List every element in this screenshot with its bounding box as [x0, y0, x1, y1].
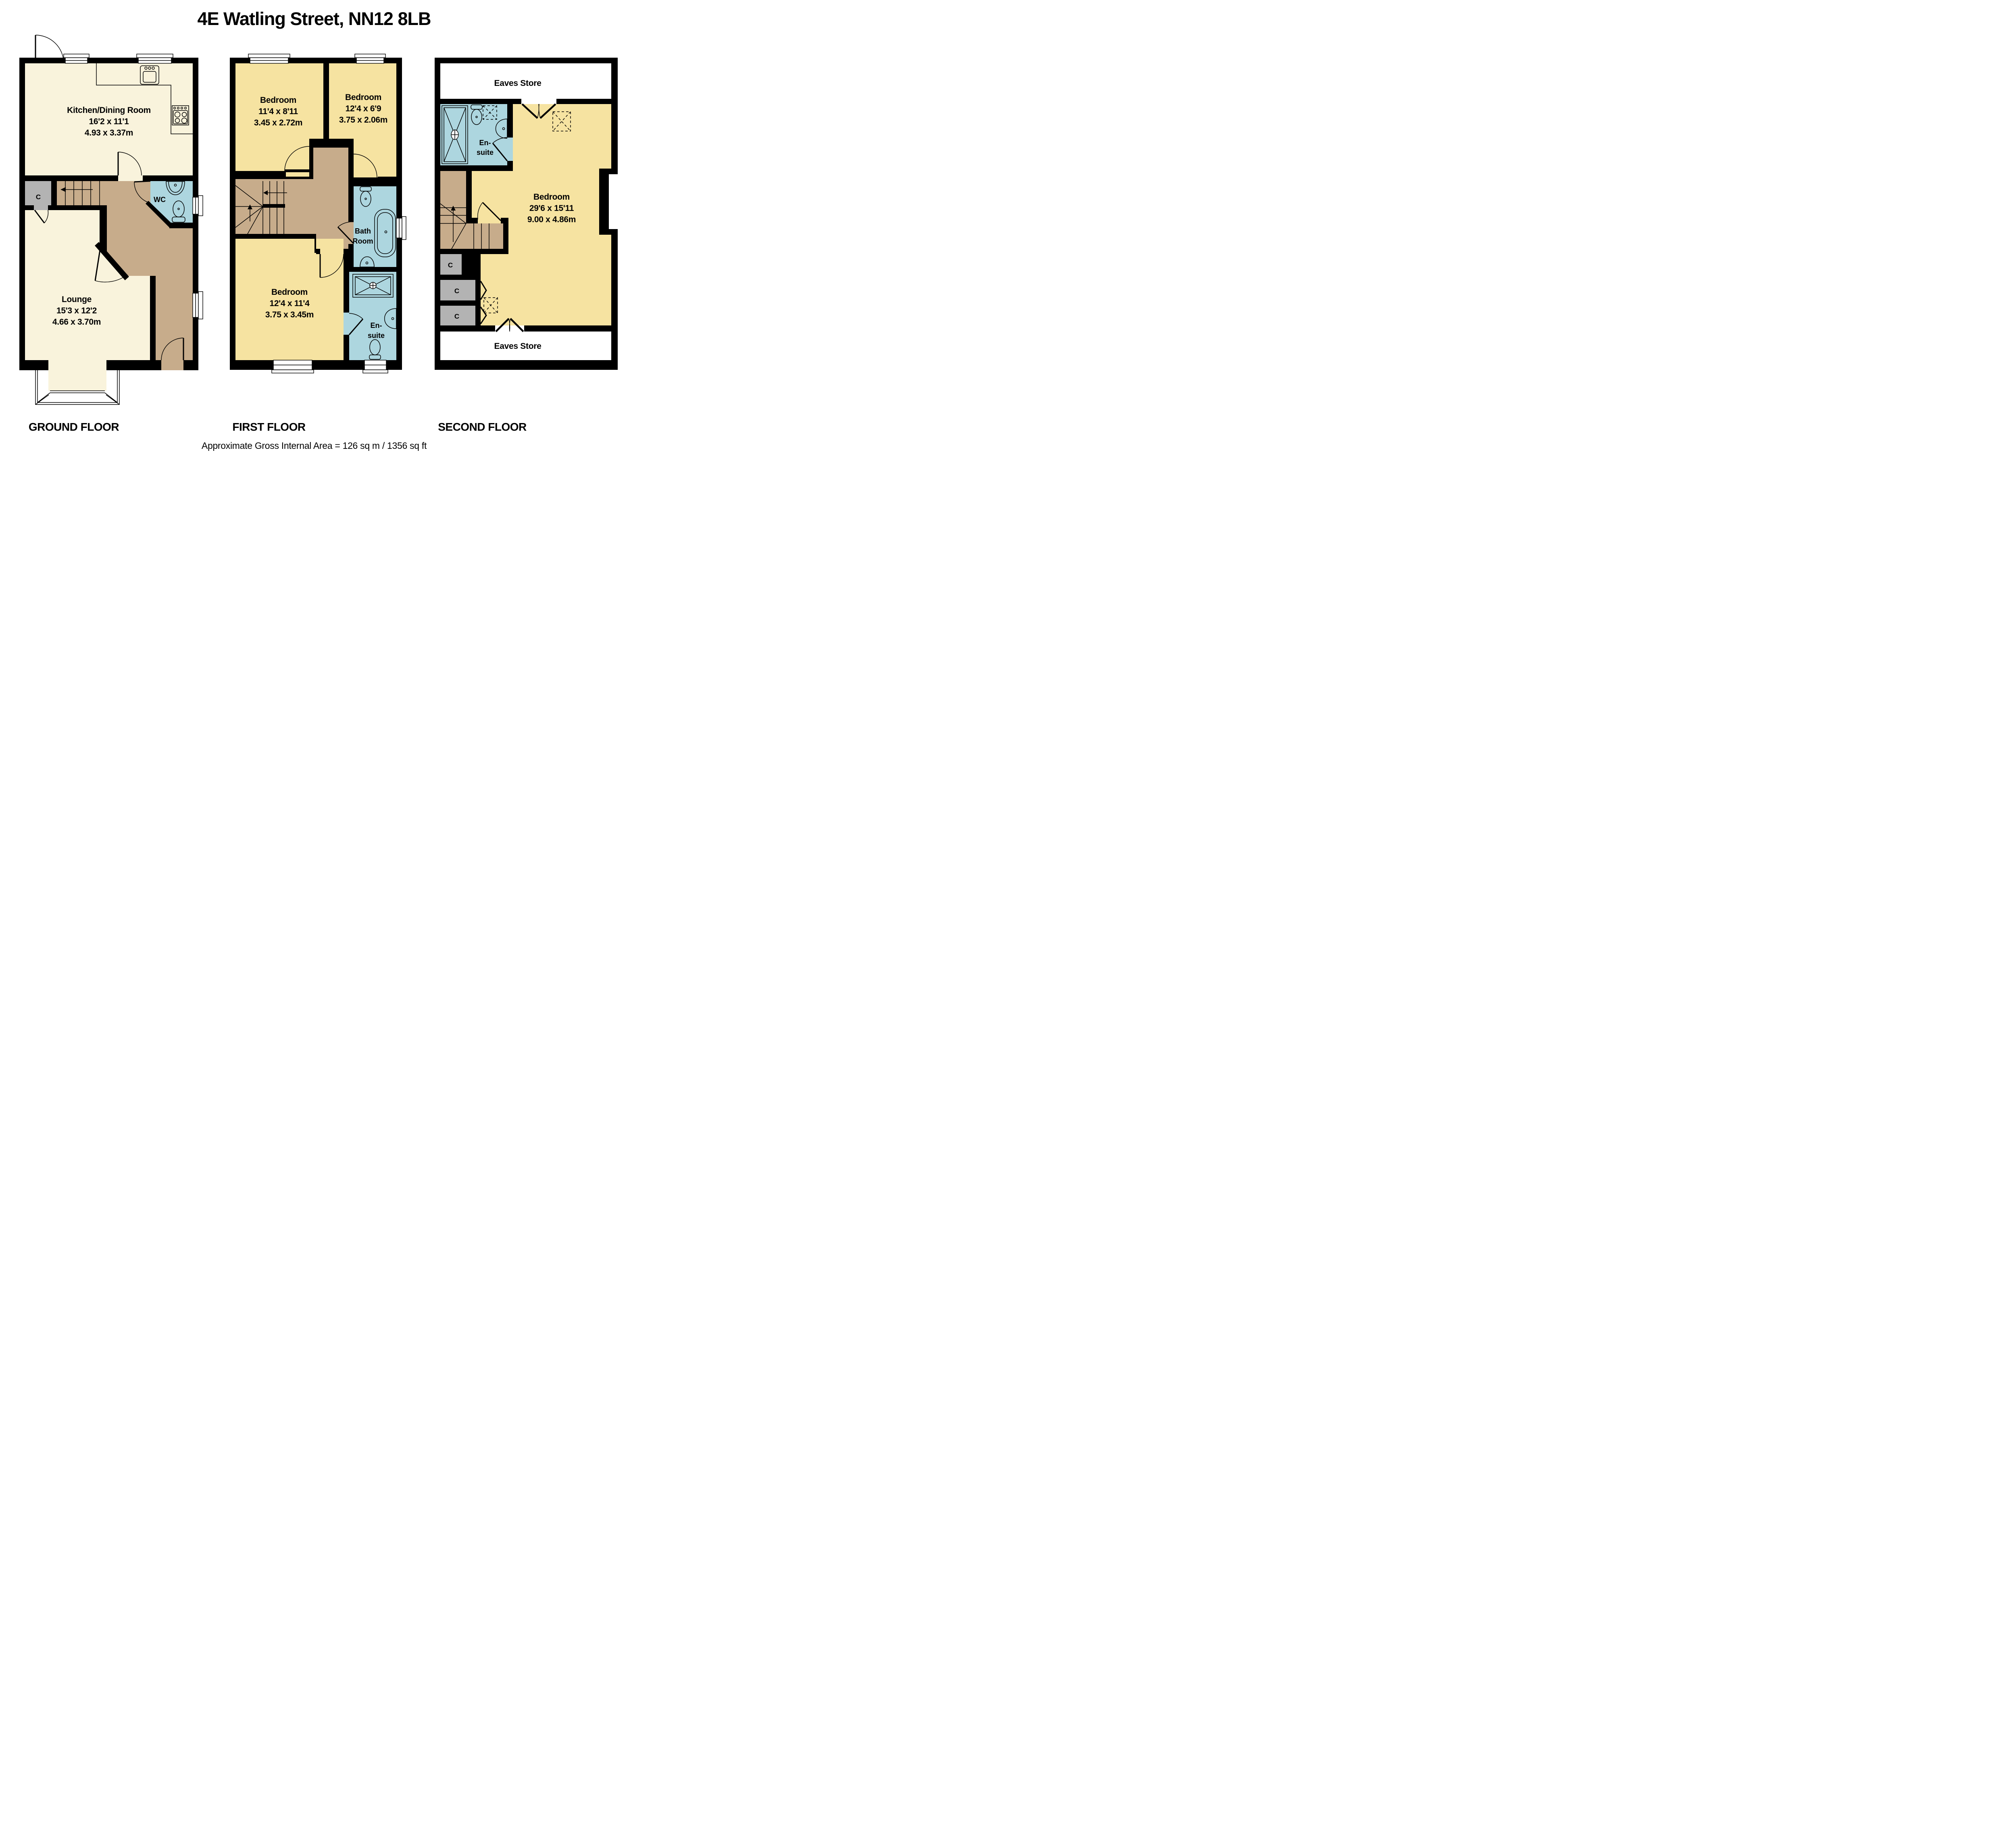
sf-recess-wall: [599, 171, 609, 232]
sf-understairs-wall: [440, 249, 508, 254]
ff-bedsmall-wall: [378, 177, 396, 179]
sf-bedroom-door-gap: [478, 218, 501, 223]
room-label-lounge: Lounge: [62, 295, 92, 304]
gf-cupboard-wall: [51, 180, 57, 205]
sf-cupboard-wall-1: [440, 275, 475, 280]
ff-step-wall: [314, 234, 316, 253]
room-label-bedroom: Bedroom: [271, 288, 308, 297]
gf-cupboard-door-gap: [34, 205, 48, 210]
room-cupboard: [25, 180, 51, 205]
floor-label-first: FIRST FLOOR: [232, 421, 305, 433]
room-label-ensuite: suite: [368, 332, 385, 340]
room-dim-metric: 3.75 x 3.45m: [265, 310, 314, 319]
gf-lounge-hall-wall: [150, 276, 156, 360]
room-dim-imperial: 12'4 x 6'9: [346, 104, 381, 113]
ff-bathroom-top-wall: [348, 179, 402, 186]
room-label-cupboard: C: [36, 193, 41, 201]
sf-cupboard-stub-1: [462, 254, 467, 275]
room-label-bedroom: Bedroom: [260, 96, 296, 105]
gf-stairs-wall: [19, 205, 107, 210]
room-label-bedroom: Bedroom: [533, 192, 570, 202]
room-label-ensuite: En-: [479, 139, 491, 147]
room-dim-imperial: 11'4 x 8'11: [258, 107, 298, 116]
floorplan-canvas: 4E Watling Street, NN12 8LB: [0, 0, 628, 460]
ff-bedroom-divider-wall: [323, 63, 329, 139]
ff-corridor-left-wall: [309, 139, 313, 177]
room-label-ensuite: suite: [477, 148, 494, 156]
sf-landing-right-wall: [503, 223, 508, 249]
room-bathroom: [354, 186, 396, 267]
room-dim-imperial: 12'4 x 11'4: [270, 299, 310, 308]
room-label-bathroom: Bath: [355, 227, 371, 235]
floorplan-page: 4E Watling Street, NN12 8LB: [0, 0, 628, 460]
gf-hall-wall: [100, 210, 107, 246]
room-dim-metric: 3.75 x 2.06m: [339, 115, 387, 125]
room-label-eaves: Eaves Store: [494, 342, 541, 351]
ff-corridor-top-wall: [309, 139, 354, 148]
room-dim-metric: 4.66 x 3.70m: [52, 317, 101, 327]
ground-floor-plan: Kitchen/Dining Room 16'2 x 11'1 4.93 x 3…: [19, 35, 203, 404]
room-dim-imperial: 29'6 x 15'11: [529, 204, 574, 213]
room-label-eaves: Eaves Store: [494, 79, 541, 88]
ff-bathroom-bottom-wall: [349, 267, 396, 272]
gf-kitchen-wall: [25, 175, 193, 181]
room-dim-metric: 3.45 x 2.72m: [254, 118, 302, 127]
sf-ensuite-bottom-wall: [440, 165, 513, 171]
room-label-wc: WC: [154, 196, 166, 204]
room-dim-metric: 9.00 x 4.86m: [527, 215, 576, 224]
page-title: 4E Watling Street, NN12 8LB: [198, 8, 431, 29]
ff-corridor: [313, 148, 348, 179]
floor-label-ground: GROUND FLOOR: [29, 421, 119, 433]
first-floor-plan: Bedroom 11'4 x 8'11 3.45 x 2.72m Bedroom…: [230, 54, 406, 373]
room-label-kitchen: Kitchen/Dining Room: [67, 106, 151, 115]
room-label-cupboard: C: [454, 313, 459, 320]
ff-bedfront-wall: [235, 171, 286, 177]
room-ensuite: [440, 104, 507, 165]
sf-landing: [466, 223, 503, 249]
second-floor-plan: Eaves Store En- suite Bedroom 29'6 x 15'…: [435, 58, 618, 370]
room-label-ensuite: En-: [371, 321, 382, 329]
room-dim-imperial: 15'3 x 12'2: [56, 306, 97, 315]
sf-eaves-doors-gap: [521, 99, 556, 104]
sf-recess-outside: [609, 174, 618, 229]
sf-cupboard-stub-3: [475, 306, 481, 325]
room-dim-imperial: 16'2 x 11'1: [89, 117, 129, 126]
room-label-cupboard: C: [448, 261, 453, 269]
ff-bedrear-right-wall: [344, 254, 349, 360]
sf-stairs-right-wall: [466, 168, 472, 218]
room-label-bathroom: Room: [353, 237, 373, 245]
sf-cupboard-stub-2: [475, 280, 481, 300]
room-dim-metric: 4.93 x 3.37m: [85, 128, 133, 138]
sf-cupboard-wall-2: [440, 300, 475, 306]
area-note: Approximate Gross Internal Area = 126 sq…: [202, 440, 427, 451]
gf-kitchen-door-gap: [118, 175, 143, 181]
floor-label-second: SECOND FLOOR: [438, 421, 527, 433]
sf-eaves-rear-wall: [440, 325, 611, 332]
ff-bathroom-left-wall-a: [348, 186, 354, 222]
room-label-bedroom: Bedroom: [345, 93, 381, 102]
ff-bedrear-top-wall: [235, 234, 314, 239]
room-label-cupboard: C: [454, 287, 459, 295]
